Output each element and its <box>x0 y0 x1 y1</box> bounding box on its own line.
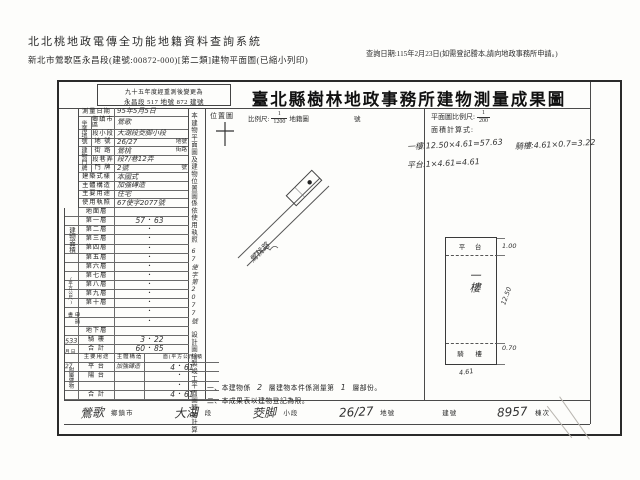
floor-row: 第七層 ・ <box>65 272 189 281</box>
strip-item: 8957 棟次 <box>497 405 550 419</box>
survey-date-value: 95年5月5日 <box>115 108 188 116</box>
dim-width: 4.61 <box>459 367 474 377</box>
decimal-point: ・ <box>175 364 184 370</box>
form-row-label: 鄉鎮市區 <box>92 117 115 129</box>
area-calc-line: 平台:1×4.61=4.61 <box>407 156 480 171</box>
note1-post: 層部份。 <box>352 385 381 392</box>
form-row-value: 加強磚造 <box>115 182 188 190</box>
floor-row: 第五層 ・ <box>65 254 189 263</box>
floor-label: 第九層 <box>79 290 115 298</box>
floor-label: 第二層 <box>79 226 115 234</box>
strip-item: 26/27 地號 <box>339 405 396 419</box>
decimal-point: ・ <box>145 255 154 261</box>
location-map-label: 位置圖 <box>210 111 234 121</box>
decimal-point: ・ <box>145 273 154 279</box>
outer-col-spacer <box>65 372 79 380</box>
subject-parcel-outline <box>286 170 321 205</box>
decimal-point: ・ <box>145 264 154 270</box>
map-scale-label: 比例尺: <box>248 113 269 123</box>
map-scale-denominator: 1200 <box>271 118 287 126</box>
query-date-note: 查詢日期:115年2月23日(如需登記謄本,請向地政事務所申請。) <box>366 49 558 59</box>
floor-label: 第一層 <box>79 217 115 225</box>
first-floor-label: 一樓 <box>466 270 482 330</box>
annex-area-int: 4 <box>147 391 175 399</box>
decimal-point: ・ <box>145 291 154 297</box>
scanned-query-page: { "colors": {"paper":"#fdfdfb","ink":"#2… <box>0 0 640 480</box>
floor-row: 地下層 <box>65 327 189 336</box>
annex-use: 平 台 <box>79 363 115 371</box>
plan-scale-fraction: 1 200 <box>477 110 490 124</box>
road-label: 鶯桃路 <box>248 240 272 264</box>
floor-label: 地下層 <box>79 327 115 335</box>
form-row-value: 大湖段茭脚小段 <box>117 130 187 137</box>
decimal-point: ・ <box>175 383 184 389</box>
note1-hand-surveyed-floor: 1 <box>337 383 351 392</box>
arcade-divider-line <box>446 343 498 344</box>
strip-label: 小段 <box>283 407 298 417</box>
floor-label <box>79 318 115 326</box>
floor-row: 第六層 ・ <box>65 263 189 272</box>
strip-hand-value: 茭脚 <box>252 403 277 421</box>
form-row-label: 段巷弄 <box>92 156 115 164</box>
floor-row: 騎 樓 3 ・ 22 <box>65 336 189 345</box>
floor-plan-drawing: 平 台 一樓 騎 樓 <box>445 237 497 365</box>
strip-bottom-line <box>64 424 590 425</box>
annex-structure <box>115 372 145 380</box>
form-row-value: 住宅 <box>115 191 188 199</box>
strip-label: 建號 <box>442 407 457 417</box>
floor-label: 地面層 <box>79 208 115 216</box>
decimal-point: ・ <box>175 373 184 379</box>
floor-row: 地面層 <box>65 208 189 217</box>
survey-date-label: 測量日期 <box>79 108 115 116</box>
annex-use-header: 主要用途 <box>79 354 115 362</box>
decimal-point: ・ <box>145 319 154 325</box>
platform-label: 平 台 <box>454 241 490 251</box>
outer-col-spacer <box>65 354 79 362</box>
form-row-label: 地 號 <box>92 139 115 147</box>
form-row: 鄉鎮市區 鶯歌 <box>79 117 188 130</box>
vnote-part1: 本建物平面圖及建物位置圖係依使用執照 <box>189 112 198 243</box>
strip-item: 鶯歌 鄉鎮市 <box>80 404 134 421</box>
floor-label: 第八層 <box>79 281 115 289</box>
annex-table: 主要用途 主體構造 面(平方公尺)積 平 台 加強磚造 4 ・ 61 <box>64 354 188 400</box>
annex-area-header: 面(平方公尺)積 <box>145 354 219 362</box>
dim-tick <box>497 364 505 365</box>
decimal-point: ・ <box>145 227 154 233</box>
note1-mid: 層建物本件係測量第 <box>269 385 335 392</box>
floor-row: 第二層 ・ <box>65 226 189 235</box>
form-row-label: 段小段 <box>92 130 115 138</box>
decimal-point: ・ <box>145 246 154 252</box>
north-cross-icon <box>214 122 236 146</box>
note1-hand-total-floors: 2 <box>253 383 267 392</box>
site-group-label: 坐落地號 <box>80 119 86 145</box>
location-map-scale: 比例尺: 1 1200 地籍圖 <box>248 111 309 125</box>
platform-divider-line <box>446 255 498 256</box>
doc-title: 臺北縣樹林地政事務所建物測量成果圖 <box>239 86 579 110</box>
floor-area-int: 60 <box>117 345 145 353</box>
decimal-point: ・ <box>145 218 154 224</box>
strip-label: 段 <box>205 407 213 417</box>
note-line-1: 一、本建物係 2 層建物本件係測量第 1 層部份。 <box>207 382 477 392</box>
annex-structure: 加強磚造 <box>115 363 145 371</box>
floor-row: 第三層 ・ <box>65 235 189 244</box>
dim-platform-depth: 1.00 <box>502 242 516 250</box>
application-no-hand: 533 <box>65 337 78 346</box>
form-row-value: 鶯桃 <box>117 148 176 155</box>
renumber-line1: 九十五年度經重測後變更為 <box>98 87 230 96</box>
strip-item: 大湖 段 <box>174 404 213 421</box>
floor-row: ・ <box>65 308 189 317</box>
floor-row: 第八層 ・ <box>65 281 189 290</box>
floor-area-int: 3 <box>117 336 145 344</box>
form-row-value: 鶯歌 <box>117 119 187 126</box>
building-area-group-label: 建物面積 <box>67 212 74 268</box>
floor-row: 合 計 60 ・ 85 <box>65 345 189 354</box>
decimal-point: ・ <box>145 346 154 352</box>
strip-label: 地號 <box>380 407 395 417</box>
floor-row: 第四層 ・ <box>65 245 189 254</box>
vnote-hand-permit-no: 67使字第2077號 <box>189 248 198 325</box>
map-sheet-label: 號 <box>354 113 361 123</box>
floor-label: 第三層 <box>79 235 115 243</box>
system-title: 北北桃地政電傳全功能地籍資料查詢系統 <box>28 33 262 49</box>
plan-scale-header: 平面圖比例尺: 1 200 <box>431 110 492 124</box>
decimal-point: ・ <box>175 392 184 398</box>
floor-label: 騎 樓 <box>79 336 115 344</box>
decimal-point: ・ <box>145 236 154 242</box>
strip-item: 建號 <box>435 407 457 417</box>
form-row: 使用執照 67使字2077號 <box>79 199 188 208</box>
floor-label <box>79 308 115 316</box>
outer-col-spacer <box>65 382 79 390</box>
outer-col-spacer <box>65 391 79 399</box>
dim-arcade-depth: 0.70 <box>502 344 516 352</box>
floor-row: 第九層 ・ <box>65 290 189 299</box>
floor-area-frac: 22 <box>154 336 189 344</box>
form-row-label: 門 牌 <box>92 165 115 173</box>
form-row-value: 本國式 <box>115 173 188 181</box>
form-row-suffix: 地號 <box>176 140 188 146</box>
floor-area-int: 57 <box>117 217 145 225</box>
annex-use <box>79 382 115 390</box>
floor-area-frac: 63 <box>154 217 189 225</box>
form-row-value: 26/27 <box>117 139 176 146</box>
floor-label: 第六層 <box>79 263 115 271</box>
area-calc-lines: 一樓:12.50×4.61=57.63 騎樓:4.61×0.7=3.22 平台:… <box>399 134 599 172</box>
form-row-label: 街 路 <box>92 147 115 155</box>
annex-structure <box>115 391 145 399</box>
bottom-strip: 鶯歌 鄉鎮市 大湖 段 茭脚 小段 26/27 地號 建號 <box>64 400 590 424</box>
map-scale-numerator: 1 <box>278 111 281 118</box>
dim-tick <box>497 255 505 256</box>
decimal-point: ・ <box>145 282 154 288</box>
area-calc-line: 騎樓:4.61×0.7=3.22 <box>514 137 595 152</box>
floor-label: 第十層 <box>79 299 115 307</box>
floor-label: 第七層 <box>79 272 115 280</box>
survey-result-document: 九十五年度經重測後變更為 永昌段 517 地號 872 建號 臺北縣樹林地政事務… <box>57 80 622 436</box>
arcade-label: 騎 樓 <box>452 348 492 358</box>
area-calc-line: 一樓:12.50×4.61=57.63 <box>407 137 503 153</box>
annex-struct-header: 主體構造 <box>115 354 145 362</box>
annex-structure <box>115 382 145 390</box>
vertical-source-note: 本建物平面圖及建物位置圖係依使用執照 67使字第2077號 設計圖繪製竣工平面圖… <box>189 112 205 400</box>
form-row-value: 67使字2077號 <box>115 199 188 207</box>
form-table-upper: 測量日期 95年5月5日 鄉鎮市區 鶯歌 段小段 大 <box>78 108 188 208</box>
map-scale-fraction: 1 1200 <box>271 111 287 125</box>
decimal-point: ・ <box>145 337 154 343</box>
floor-row: 第十層 ・ <box>65 299 189 308</box>
strip-hand-value: 鶯歌 <box>80 403 105 421</box>
annex-use: 合 計 <box>79 391 115 399</box>
map-type-label: 地籍圖 <box>289 113 309 123</box>
floor-label: 第四層 <box>79 245 115 253</box>
dim-tick <box>497 238 505 239</box>
floor-area-table: 地面層 第一層 57 ・ 63 <box>64 208 188 354</box>
plan-scale-numerator: 1 <box>482 110 485 117</box>
form-row-value: 2號 <box>117 165 181 172</box>
floor-row: 第一層 57 ・ 63 <box>65 217 189 226</box>
strip-item: 茭脚 小段 <box>252 404 298 421</box>
strip-hand-value: 8957 <box>497 404 528 420</box>
outer-col-spacer <box>65 363 79 371</box>
plan-scale-denominator: 200 <box>477 117 490 125</box>
decimal-point: ・ <box>145 309 154 315</box>
note1-pre: 一、本建物係 <box>207 385 251 392</box>
plan-scale-label: 平面圖比例尺: <box>431 112 475 122</box>
form-row-label: 建築式樣 <box>79 173 115 181</box>
floor-label: 合 計 <box>79 345 115 353</box>
floor-label: 第五層 <box>79 254 115 262</box>
form-row-label: 主體構造 <box>79 182 115 190</box>
form-row-label: 使用執照 <box>79 199 115 207</box>
annex-area-int: 4 <box>147 364 175 372</box>
strip-hand-value: 大湖 <box>173 403 198 421</box>
location-sketch: 鶯桃路 <box>224 154 359 284</box>
strip-label: 鄉鎮市 <box>111 407 134 417</box>
form-row-suffix: 街路 <box>176 148 188 154</box>
annex-use: 陽 台 <box>79 372 115 380</box>
form-row-suffix: 號 <box>181 166 188 172</box>
area-unit-label: (平方公尺) <box>68 270 73 310</box>
form-row-label: 主要用途 <box>79 191 115 199</box>
strip-hand-value: 26/27 <box>338 404 373 420</box>
form-row-value: 段7/巷12弄 <box>117 156 187 163</box>
floor-area-frac: 85 <box>154 345 189 353</box>
application-group-label: 申請書 <box>67 312 81 330</box>
door-group-label: 建物門牌 <box>80 146 86 172</box>
print-subtitle: 新北市鶯歌區永昌段(建號:00872-000)[第二類]建物平面圖(已縮小列印) <box>28 54 308 66</box>
renumber-line2: 永昌段 517 地號 872 建號 <box>98 96 230 106</box>
decimal-point: ・ <box>145 300 154 306</box>
renumber-box: 九十五年度經重測後變更為 永昌段 517 地號 872 建號 <box>97 84 231 106</box>
floor-row: ・ <box>65 318 189 327</box>
dim-floor-depth: 12.50 <box>499 286 513 306</box>
